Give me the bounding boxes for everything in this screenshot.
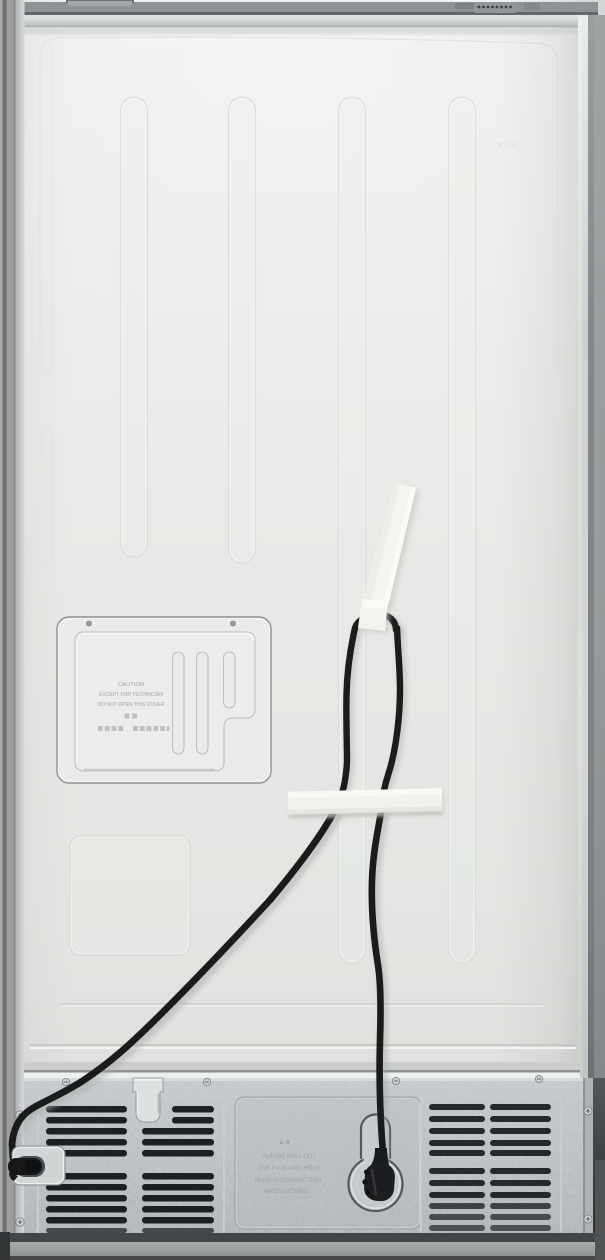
svg-text:WHEN MOVING: WHEN MOVING [264,1189,309,1195]
svg-text:PLEASE PULL OUT: PLEASE PULL OUT [262,1154,316,1160]
svg-text:PLUG-IN CONNECTION: PLUG-IN CONNECTION [255,1178,321,1184]
svg-text:THE PLUG AND HOLD: THE PLUG AND HOLD [258,1166,321,1172]
svg-text:EXCEPT FOR TECHNICIAN: EXCEPT FOR TECHNICIAN [99,692,163,698]
svg-text:M17 B: M17 B [497,142,518,149]
svg-text:CAUTION: CAUTION [118,682,144,688]
svg-text:▲ ■: ▲ ■ [278,1139,290,1146]
svg-text:DO NOT OPEN THIS COVER: DO NOT OPEN THIS COVER [98,702,165,708]
